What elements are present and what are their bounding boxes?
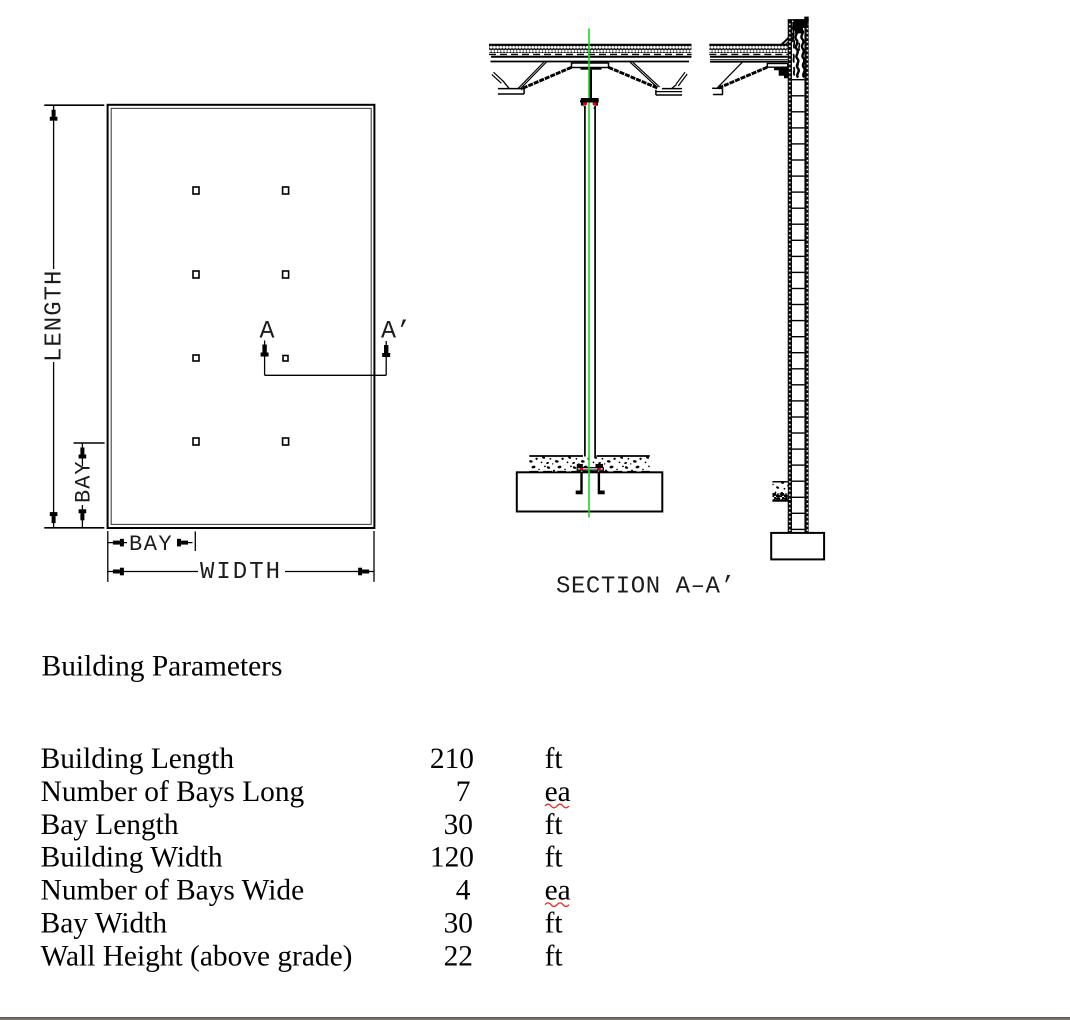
svg-text:ft: ft (545, 940, 563, 972)
svg-text:4: 4 (456, 875, 471, 907)
svg-text:Building Length: Building Length (41, 743, 235, 775)
svg-text:Building Width: Building Width (41, 842, 223, 874)
svg-text:LENGTH: LENGTH (42, 270, 69, 362)
svg-text:210: 210 (430, 743, 474, 775)
svg-text:BAY: BAY (72, 460, 97, 503)
svg-text:Bay Length: Bay Length (41, 809, 179, 841)
svg-text:ea: ea (545, 776, 571, 808)
svg-text:Building Parameters: Building Parameters (42, 651, 283, 683)
svg-text:SECTION A–A’: SECTION A–A’ (556, 574, 735, 601)
svg-text:A: A (260, 317, 275, 346)
svg-text:ft: ft (545, 743, 563, 775)
svg-text:120: 120 (430, 842, 474, 874)
svg-text:Bay Width: Bay Width (41, 908, 168, 940)
svg-text:Wall Height (above grade): Wall Height (above grade) (41, 940, 353, 972)
svg-text:ft: ft (545, 908, 563, 940)
svg-text:Number of Bays Wide: Number of Bays Wide (41, 875, 305, 907)
svg-text:BAY: BAY (129, 532, 173, 557)
svg-text:ft: ft (545, 809, 563, 841)
svg-text:30: 30 (444, 908, 473, 940)
svg-text:WIDTH: WIDTH (200, 559, 282, 586)
svg-text:ft: ft (545, 842, 563, 874)
svg-text:22: 22 (444, 940, 473, 972)
svg-text:Number of Bays Long: Number of Bays Long (41, 776, 305, 808)
svg-text:30: 30 (444, 809, 473, 841)
svg-text:7: 7 (456, 776, 471, 808)
svg-text:A’: A’ (381, 317, 411, 346)
svg-text:ea: ea (545, 875, 571, 907)
